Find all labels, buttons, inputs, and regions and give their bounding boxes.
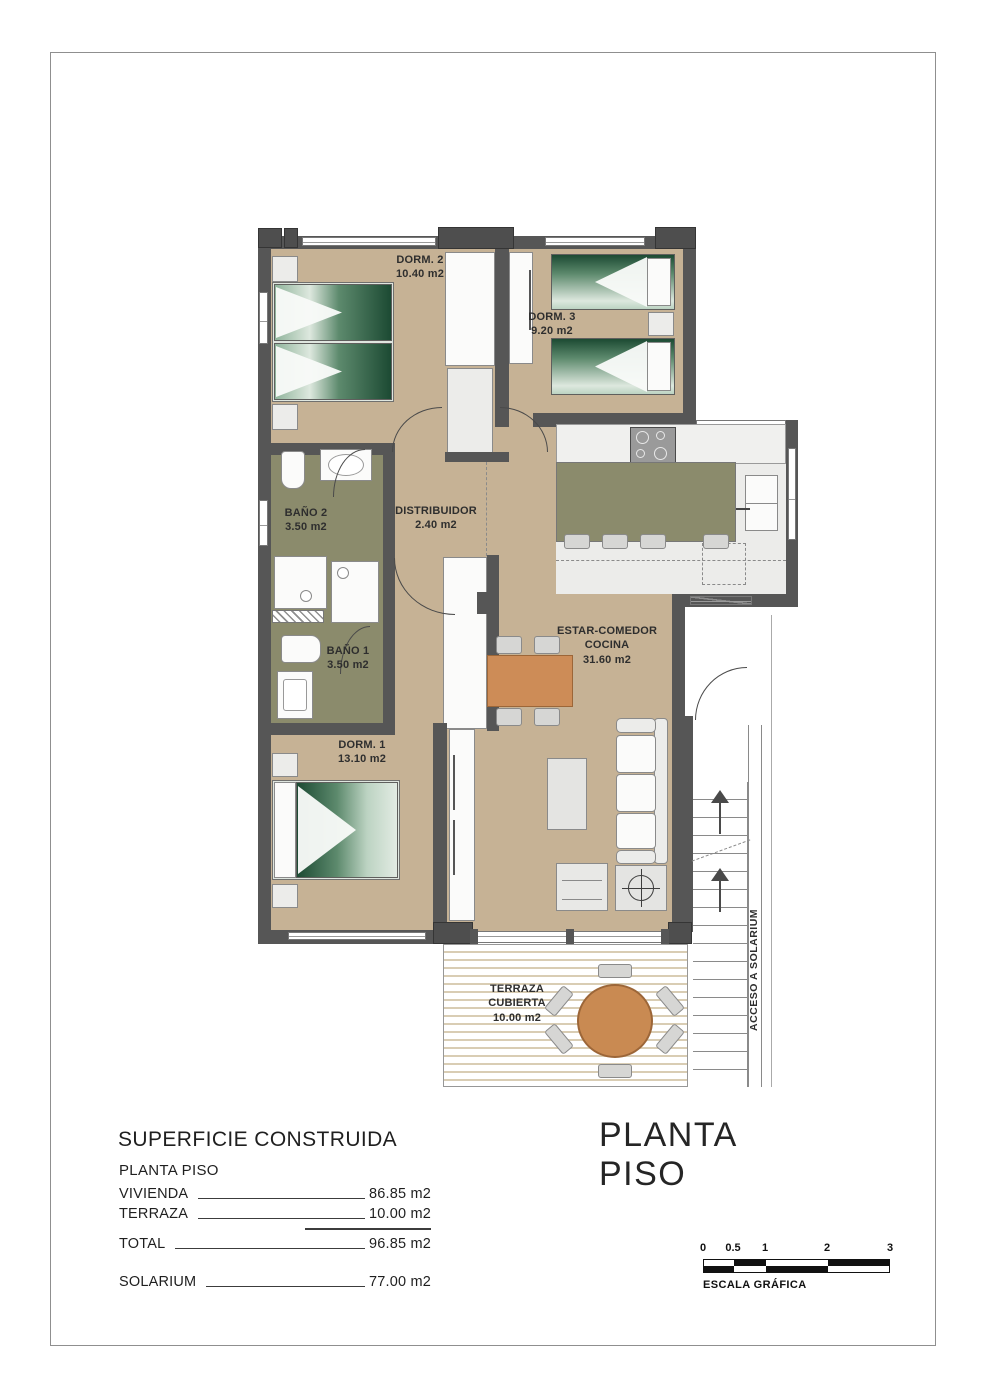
summary-subtitle: PLANTA PISO <box>119 1162 219 1179</box>
sliding-door-post <box>661 929 669 945</box>
room-label-dorm1: DORM. 1 13.10 m2 <box>322 738 402 767</box>
room-name: DORM. 3 <box>512 310 592 324</box>
sliding-door-post <box>470 929 478 945</box>
coffee-table <box>547 758 587 830</box>
scale-segment <box>704 1266 734 1272</box>
kitchen-island <box>556 462 736 542</box>
summary-divider <box>305 1228 431 1230</box>
room-label-estar: ESTAR-COMEDOR COCINA 31.60 m2 <box>557 624 657 667</box>
room-area: 3.50 m2 <box>268 520 344 534</box>
summary-row-solarium: SOLARIUM 77.00 m2 <box>119 1274 431 1290</box>
scale-segment <box>766 1266 828 1272</box>
pillar-terrace-ne <box>668 922 692 944</box>
stairs-arrow-stem <box>719 880 721 912</box>
room-label-bano1: BAÑO 1 3.50 m2 <box>310 644 386 673</box>
wardrobe-handle <box>453 820 455 875</box>
leader-line <box>198 1218 365 1219</box>
summary-label: VIVIENDA <box>119 1186 188 1202</box>
armchair-line <box>562 899 602 900</box>
wall-dorm3-right <box>683 236 696 426</box>
nightstand <box>648 312 674 336</box>
nightstand <box>272 404 298 430</box>
summary-label: TOTAL <box>119 1236 165 1252</box>
room-name: DORM. 2 <box>380 253 460 267</box>
stairs-label: ACCESO A SOLARIUM <box>748 895 762 1045</box>
window-left-1 <box>259 292 268 344</box>
dorm3-pillow <box>647 258 671 306</box>
dashed-appliance <box>702 543 746 585</box>
summary-value: 10.00 m2 <box>369 1206 431 1222</box>
leader-line <box>206 1286 365 1287</box>
terrace-chair <box>598 964 632 978</box>
summary-title: SUPERFICIE CONSTRUIDA <box>118 1128 397 1152</box>
leader-line <box>175 1248 365 1249</box>
window-left-2 <box>259 500 268 546</box>
room-name-2: CUBIERTA <box>467 996 567 1010</box>
sofa-arm <box>616 718 656 733</box>
sofa-back <box>654 718 668 864</box>
room-area: 3.50 m2 <box>310 658 386 672</box>
scale-caption: ESCALA GRÁFICA <box>703 1279 807 1291</box>
window-dorm1 <box>288 932 426 940</box>
pillar <box>655 227 696 249</box>
sliding-door-post <box>566 929 574 945</box>
terrace-chair <box>598 1064 632 1078</box>
room-label-distribuidor: DISTRIBUIDOR 2.40 m2 <box>390 504 482 533</box>
outer-edge-line <box>762 615 772 1087</box>
summary-row-terraza: TERRAZA 10.00 m2 <box>119 1206 431 1222</box>
room-name: ESTAR-COMEDOR <box>557 624 657 638</box>
summary-value: 77.00 m2 <box>369 1274 431 1290</box>
shower-drain <box>300 590 312 602</box>
wardrobe-hall-lower <box>447 368 493 454</box>
room-name: TERRAZA <box>467 982 567 996</box>
room-label-bano2: BAÑO 2 3.50 m2 <box>268 506 344 535</box>
dining-chair <box>496 708 522 726</box>
floor-plan-sheet: ACCESO A SOLARIUM DORM. 2 10.40 m2 DORM.… <box>0 0 989 1400</box>
toilet-bath2 <box>281 451 305 489</box>
pillar-terrace-nw <box>433 922 473 944</box>
sofa-cushion <box>616 813 656 849</box>
scale-bar-strip <box>703 1259 890 1273</box>
summary-label: SOLARIUM <box>119 1274 196 1290</box>
wall-hall-closet <box>495 249 509 427</box>
stairs-arrow-stem <box>719 802 721 834</box>
burner <box>636 449 645 458</box>
sink-basin <box>283 679 307 711</box>
nightstand <box>272 884 298 908</box>
scale-segment <box>734 1266 766 1272</box>
summary-value: 96.85 m2 <box>369 1236 431 1252</box>
terrace-table <box>577 984 653 1058</box>
armchair-line <box>562 880 602 881</box>
shower-drain <box>337 567 349 579</box>
window-kitchen-bottom <box>690 596 752 605</box>
room-area: 2.40 m2 <box>390 518 482 532</box>
wall-closet-frame <box>445 452 509 462</box>
bar-stool <box>640 534 666 549</box>
bar-stool <box>602 534 628 549</box>
room-area: 9.20 m2 <box>512 324 592 338</box>
sofa-cushion <box>616 735 656 773</box>
dorm3-pillow <box>647 342 671 391</box>
bar-stool <box>564 534 590 549</box>
room-name-2: COCINA <box>557 638 657 652</box>
burner <box>636 431 649 444</box>
pillar <box>438 227 514 249</box>
room-name: DORM. 1 <box>322 738 402 752</box>
pillar <box>284 228 298 248</box>
armchair <box>556 863 608 911</box>
window-dorm2 <box>302 237 436 246</box>
wall-living-right <box>672 594 685 724</box>
wall-stairs <box>672 716 693 932</box>
scale-tick: 0 <box>700 1242 706 1254</box>
scale-tick: 3 <box>887 1242 893 1254</box>
room-area: 10.40 m2 <box>380 267 460 281</box>
room-name: BAÑO 2 <box>268 506 344 520</box>
dorm1-pillow <box>274 782 296 878</box>
scale-bar: 0 0.5 1 2 3 ESCALA GRÁFICA <box>703 1242 890 1290</box>
shower-tray-1 <box>274 556 327 609</box>
summary-row-total: TOTAL 96.85 m2 <box>119 1236 431 1252</box>
room-name: BAÑO 1 <box>310 644 386 658</box>
room-area: 31.60 m2 <box>557 653 657 667</box>
shower-sill <box>272 610 324 623</box>
scale-tick: 1 <box>762 1242 768 1254</box>
window-kitchen-right <box>788 448 796 540</box>
sink-divider <box>745 503 778 504</box>
room-label-dorm3: DORM. 3 9.20 m2 <box>512 310 592 339</box>
sofa-arm <box>616 850 656 864</box>
window-dorm3 <box>545 237 645 246</box>
summary-label: TERRAZA <box>119 1206 188 1222</box>
dining-chair <box>496 636 522 654</box>
summary-row-vivienda: VIVIENDA 86.85 m2 <box>119 1186 431 1202</box>
scale-tick: 2 <box>824 1242 830 1254</box>
room-label-terraza: TERRAZA CUBIERTA 10.00 m2 <box>467 982 567 1025</box>
dashed-divider <box>486 462 487 556</box>
summary-value: 86.85 m2 <box>369 1186 431 1202</box>
faucet <box>736 508 750 510</box>
wall-dorm1-right <box>433 723 447 930</box>
wardrobe-handle <box>453 755 455 810</box>
crosshair-symbol <box>641 869 643 907</box>
leader-line <box>198 1198 365 1199</box>
room-area: 13.10 m2 <box>322 752 402 766</box>
sofa-cushion <box>616 774 656 812</box>
wall-dorm1-top <box>271 723 395 735</box>
wardrobe-handle <box>477 592 487 614</box>
pillar <box>258 228 282 248</box>
room-area: 10.00 m2 <box>467 1011 567 1025</box>
dining-chair <box>534 708 560 726</box>
scale-tick: 0.5 <box>725 1242 740 1254</box>
dashed-counter <box>556 560 786 561</box>
nightstand <box>272 256 298 282</box>
bar-stool <box>703 534 729 549</box>
wall-bath-right <box>383 443 395 735</box>
drawing-title: PLANTA PISO <box>599 1116 819 1194</box>
scale-segment <box>828 1266 889 1272</box>
burner <box>654 447 667 460</box>
nightstand <box>272 753 298 777</box>
burner <box>656 431 665 440</box>
room-label-dorm2: DORM. 2 10.40 m2 <box>380 253 460 282</box>
room-name: DISTRIBUIDOR <box>390 504 482 518</box>
